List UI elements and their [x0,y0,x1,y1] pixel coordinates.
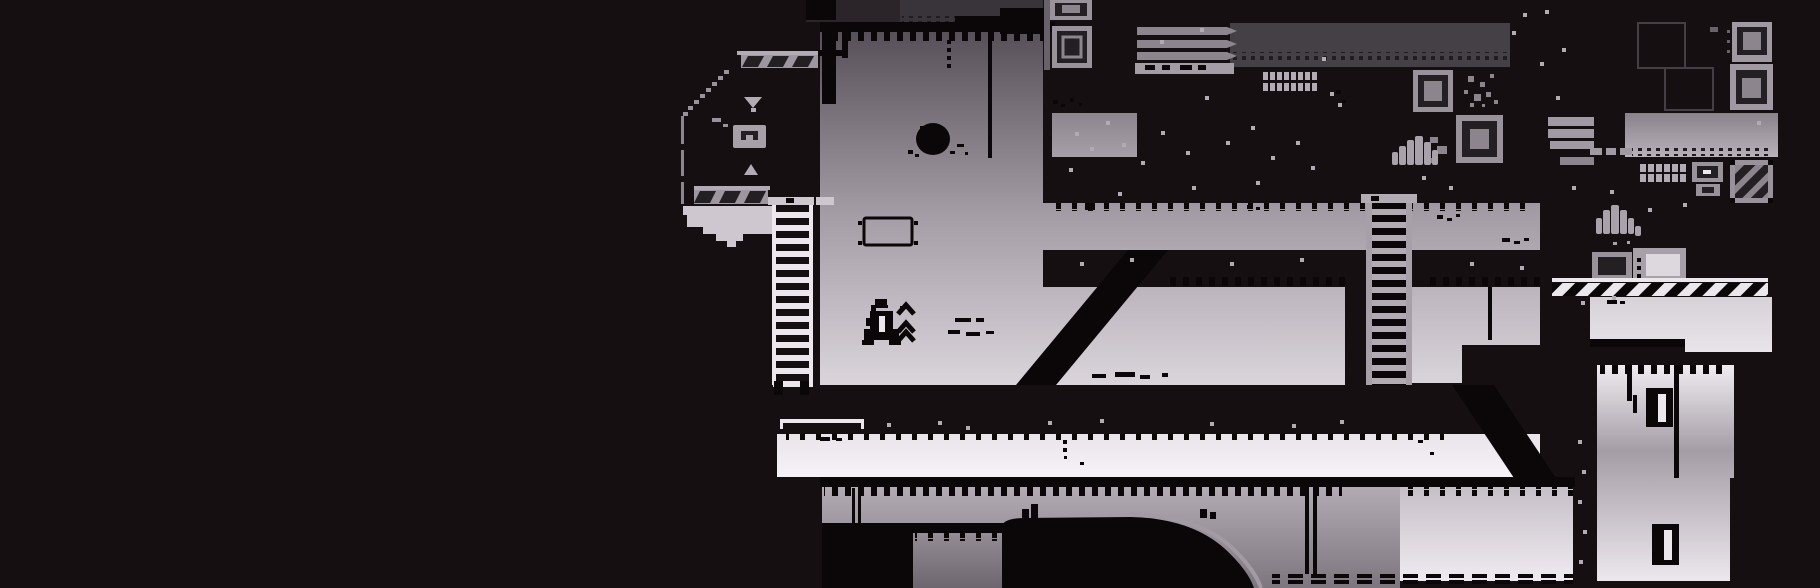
ceiling-band [1230,23,1510,67]
monitor-panel [1692,162,1723,196]
coral-cluster-2 [1596,205,1641,245]
hatch-door-1 [1646,388,1673,427]
wall-grate-2-cells [1640,164,1686,182]
window-opening [1052,113,1137,157]
hazard-crate [1730,160,1773,203]
upper-right-crates [1727,22,1773,110]
top-right-room [1590,297,1772,352]
game-viewport[interactable] [0,0,1820,588]
wall-grate [1263,72,1317,91]
wall-grate-2 [1640,164,1686,182]
ladder-right [1361,194,1417,385]
scene [0,0,1820,588]
floor-strip [820,477,1575,487]
crate-single-2 [1456,115,1503,163]
right-room [1412,287,1540,383]
machine-boxes [1592,248,1686,280]
bevel-edge [681,70,729,204]
outline-squares [1638,23,1718,110]
meter-box [733,125,766,148]
hazard-conveyor [1552,278,1768,296]
hatch-door-2 [1652,524,1679,565]
right-platform-band [1548,113,1778,165]
down-arrow-indicator [744,97,762,112]
wall-grate-cells [1263,72,1317,91]
bottom-dashes [1272,574,1573,584]
debris-cluster [1464,74,1498,107]
up-arrow-indicator [744,164,758,175]
lower-right-room [1400,487,1573,581]
hanging-wire [988,28,992,158]
ladder-left-rungs [773,212,813,387]
walkway [777,434,1540,477]
stepped-ledge [683,206,773,247]
hatch-platform-top [737,51,818,68]
hatch-platform-mid [694,186,770,204]
railing [780,419,864,429]
